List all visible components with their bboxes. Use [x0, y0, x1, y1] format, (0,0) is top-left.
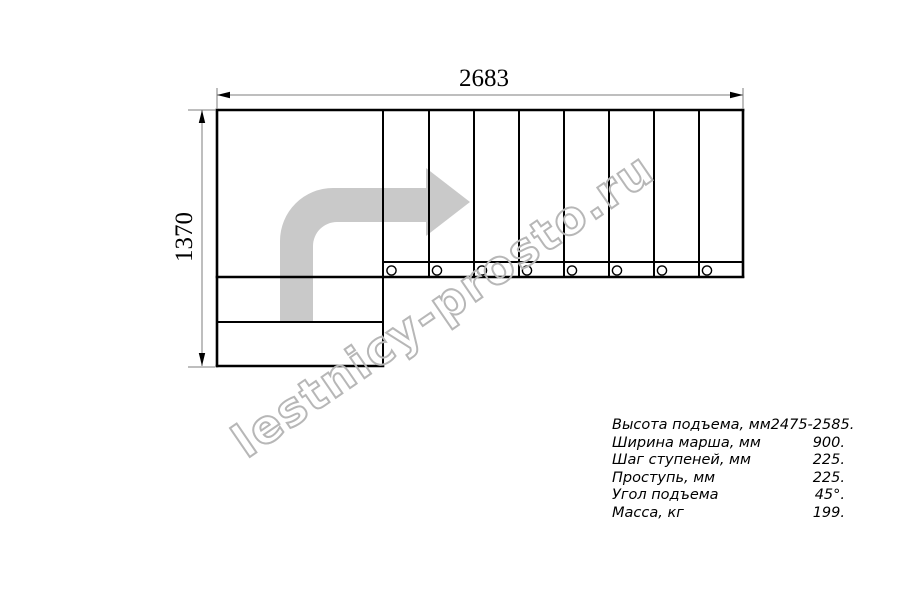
fastener-circle	[702, 266, 711, 275]
dimension-arrowhead-top	[199, 110, 205, 123]
spec-value: 45°.	[815, 487, 845, 505]
spec-value: 225.	[813, 470, 845, 488]
spec-label: Ширина марша, мм	[612, 435, 761, 453]
spec-label: Высота подъема, мм	[612, 417, 771, 435]
stair-plan-screenshot: 2683 1370	[0, 0, 900, 600]
fastener-circles	[387, 266, 712, 275]
spec-label: Шаг ступеней, мм	[612, 452, 751, 470]
fastener-circle	[387, 266, 396, 275]
spec-row-step-pitch: Шаг ступеней, мм 225.	[612, 452, 845, 470]
spec-row-height: Высота подъема, мм 2475-2585.	[612, 417, 845, 435]
spec-value: 900.	[813, 435, 845, 453]
fastener-circle	[657, 266, 666, 275]
dimension-arrowhead-bottom	[199, 353, 205, 366]
spec-row-mass: Масса, кг 199.	[612, 505, 845, 523]
fastener-circle	[567, 266, 576, 275]
height-dimension-label: 1370	[171, 212, 198, 262]
spec-value: 2475-2585.	[771, 417, 855, 435]
spec-row-angle: Угол подъема 45°.	[612, 487, 845, 505]
spec-label: Масса, кг	[612, 505, 684, 523]
spec-label: Угол подъема	[612, 487, 719, 505]
height-dimension: 1370	[171, 110, 215, 367]
spec-value: 199.	[813, 505, 845, 523]
width-dimension-label: 2683	[459, 65, 509, 92]
fastener-circle	[612, 266, 621, 275]
dimension-arrowhead-left	[217, 92, 230, 98]
spec-table: Высота подъема, мм 2475-2585. Ширина мар…	[612, 417, 845, 522]
spec-label: Проступь, мм	[612, 470, 715, 488]
dimension-arrowhead-right	[730, 92, 743, 98]
spec-value: 225.	[813, 452, 845, 470]
spec-row-flight-width: Ширина марша, мм 900.	[612, 435, 845, 453]
width-dimension: 2683	[217, 65, 743, 108]
spec-row-tread: Проступь, мм 225.	[612, 470, 845, 488]
